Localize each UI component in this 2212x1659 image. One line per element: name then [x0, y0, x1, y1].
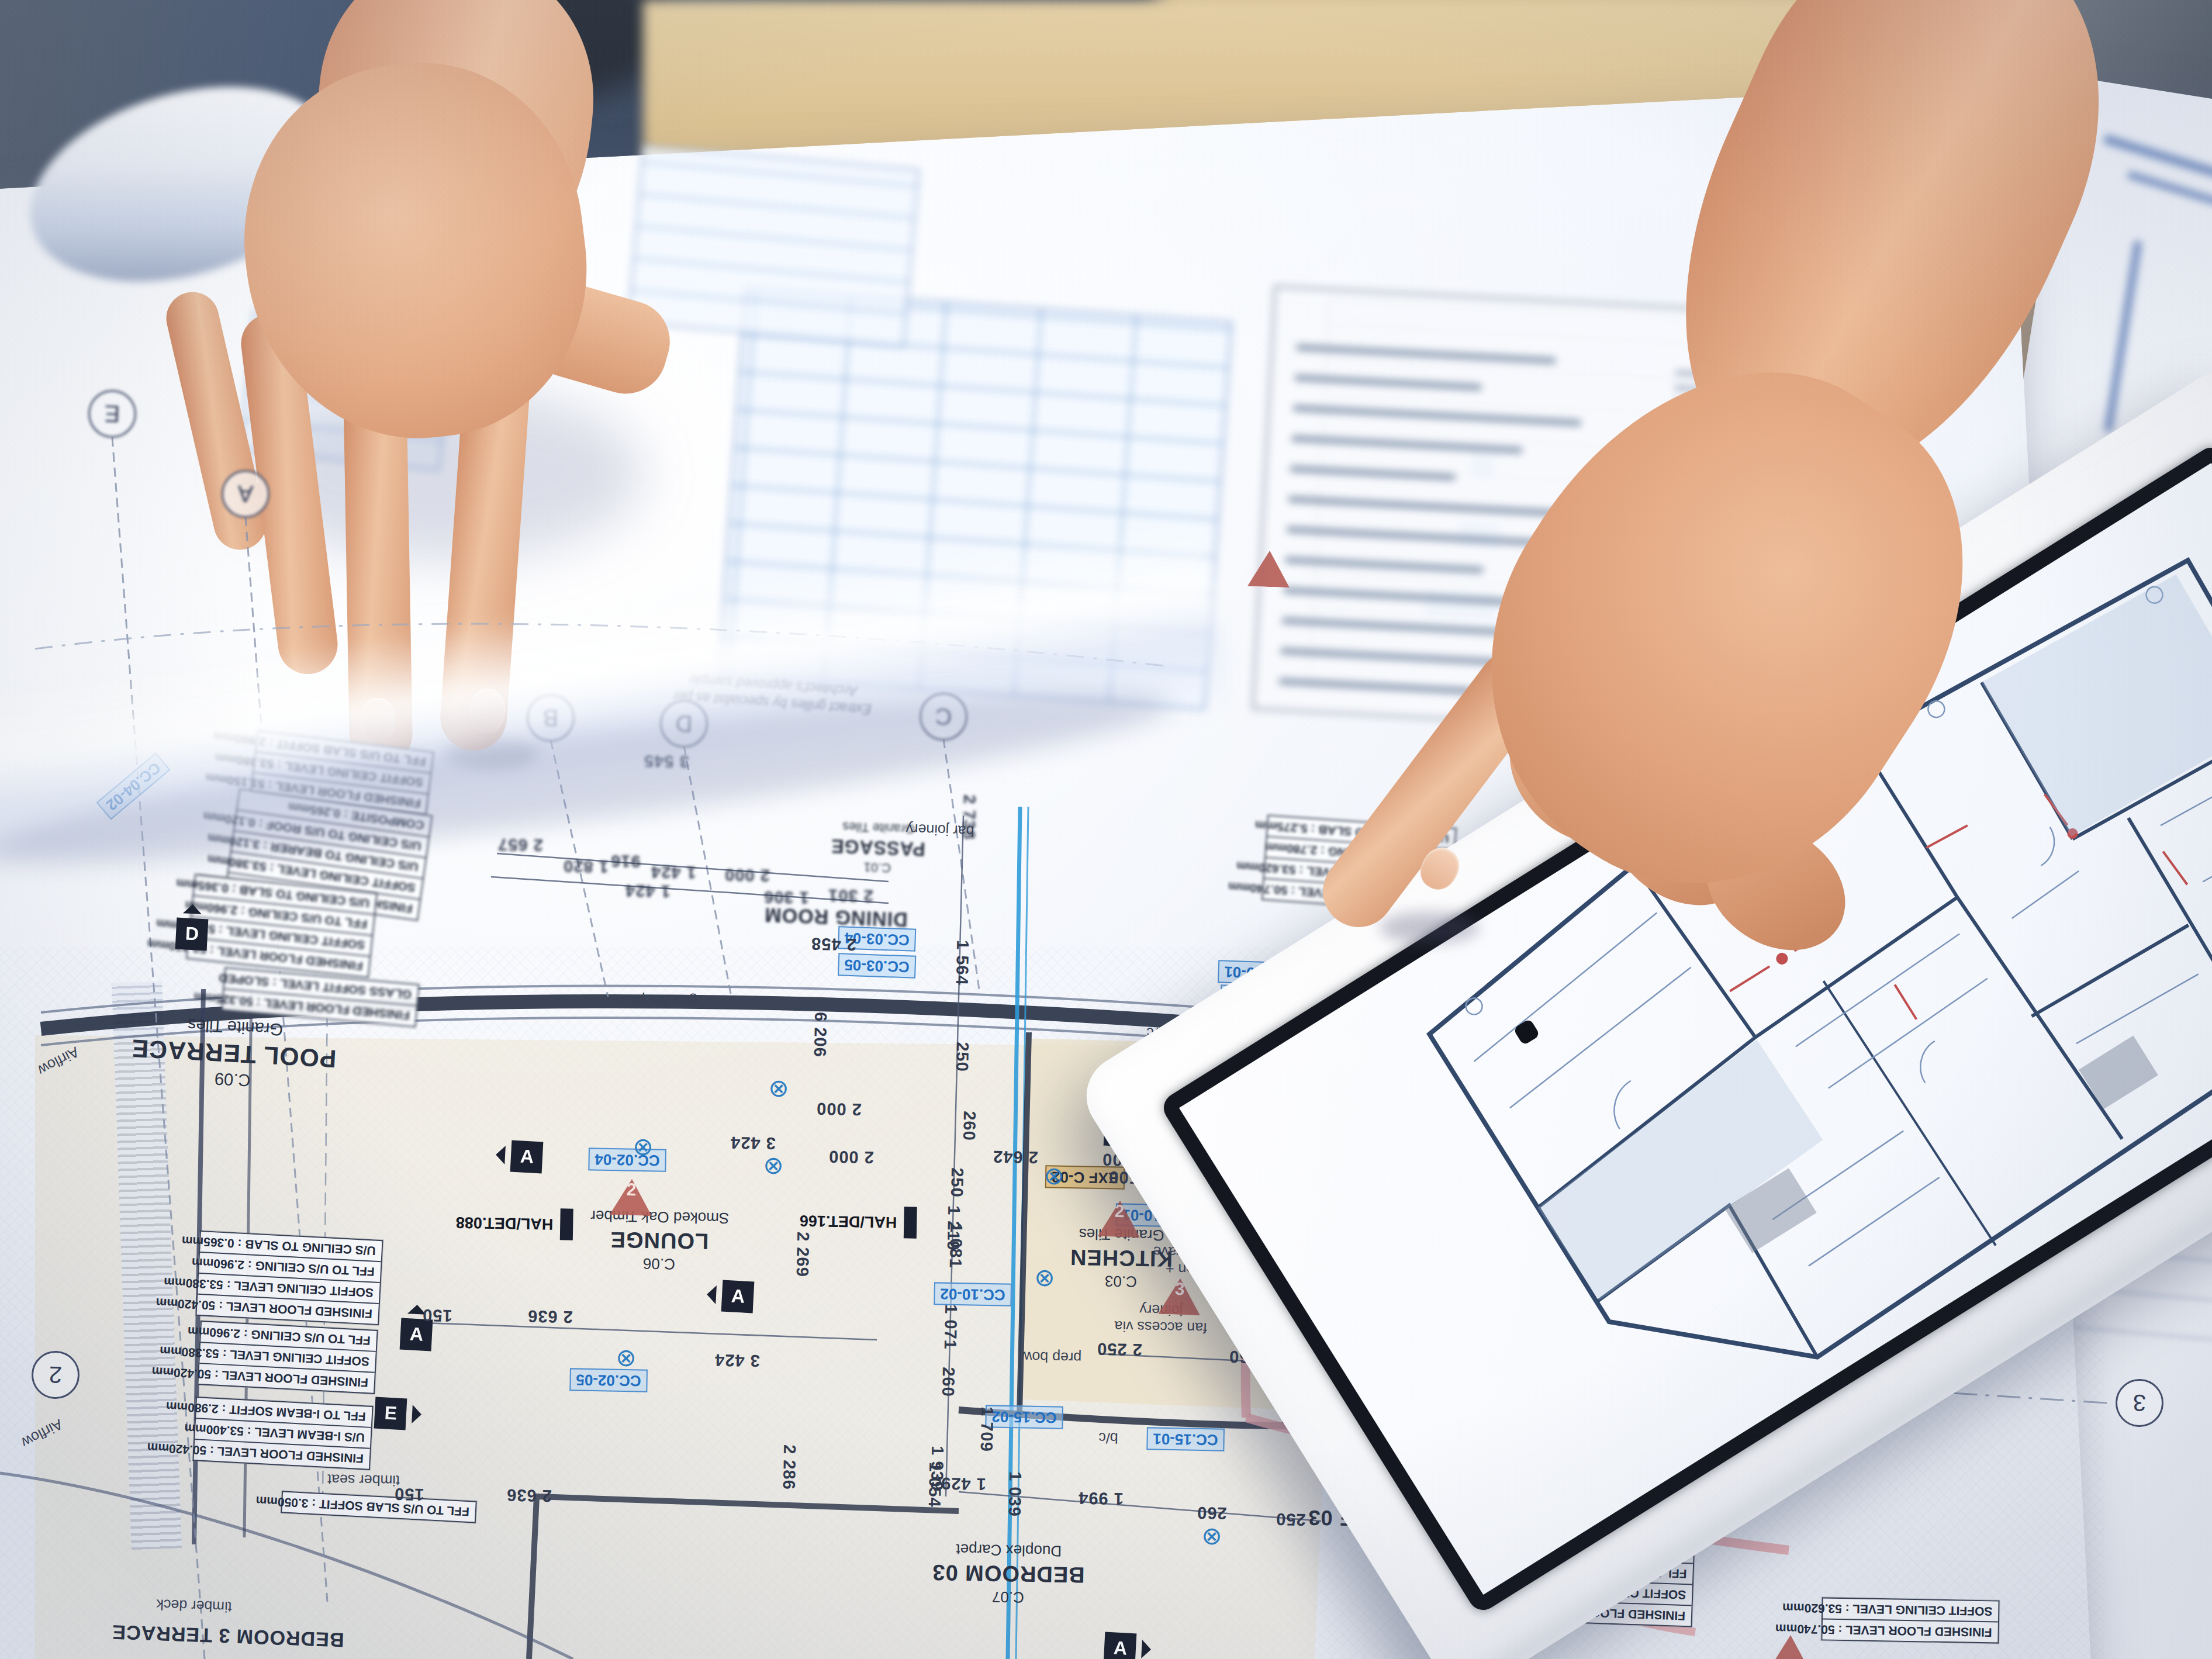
- fingertip-shadow: [1380, 912, 1479, 943]
- photo-scene: C.09POOL TERRACEGranite TilesC.06LOUNGES…: [0, 0, 2212, 1659]
